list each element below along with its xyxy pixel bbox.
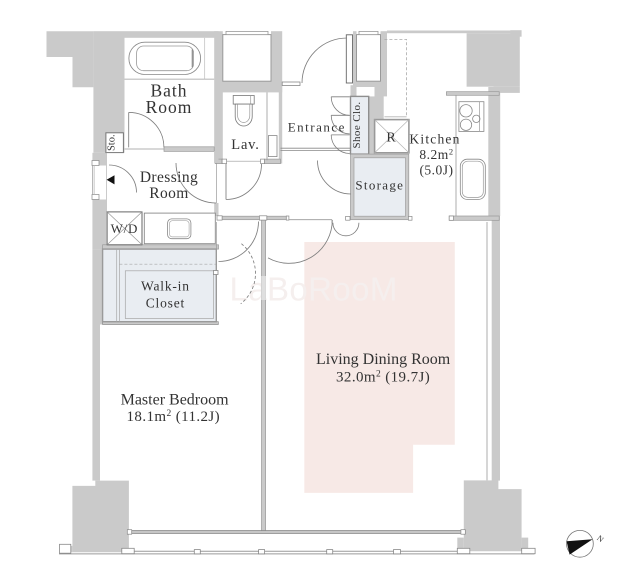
svg-text:W/D: W/D (111, 221, 139, 236)
svg-text:R: R (386, 131, 396, 146)
svg-text:Kitchen: Kitchen (409, 132, 460, 147)
svg-text:Sto.: Sto. (106, 134, 117, 151)
svg-text:32.0m2 (19.7J): 32.0m2 (19.7J) (336, 370, 430, 386)
svg-text:Master Bedroom: Master Bedroom (121, 392, 230, 409)
svg-text:Entrance: Entrance (288, 120, 346, 135)
svg-text:Shoe Clo.: Shoe Clo. (351, 102, 363, 149)
svg-text:Room: Room (146, 97, 193, 117)
svg-text:8.2m2: 8.2m2 (419, 147, 453, 163)
svg-text:Closet: Closet (146, 296, 185, 311)
svg-text:Lav.: Lav. (231, 137, 259, 153)
svg-text:Storage: Storage (355, 178, 404, 193)
svg-text:Walk-in: Walk-in (141, 278, 190, 293)
svg-text:18.1m2 (11.2J): 18.1m2 (11.2J) (127, 409, 221, 425)
svg-text:Living Dining Room: Living Dining Room (316, 351, 451, 368)
svg-text:Dressing: Dressing (140, 169, 198, 186)
svg-text:LaBoRooM: LaBoRooM (230, 271, 398, 308)
svg-text:(5.0J): (5.0J) (419, 163, 453, 178)
svg-text:Room: Room (149, 185, 189, 202)
